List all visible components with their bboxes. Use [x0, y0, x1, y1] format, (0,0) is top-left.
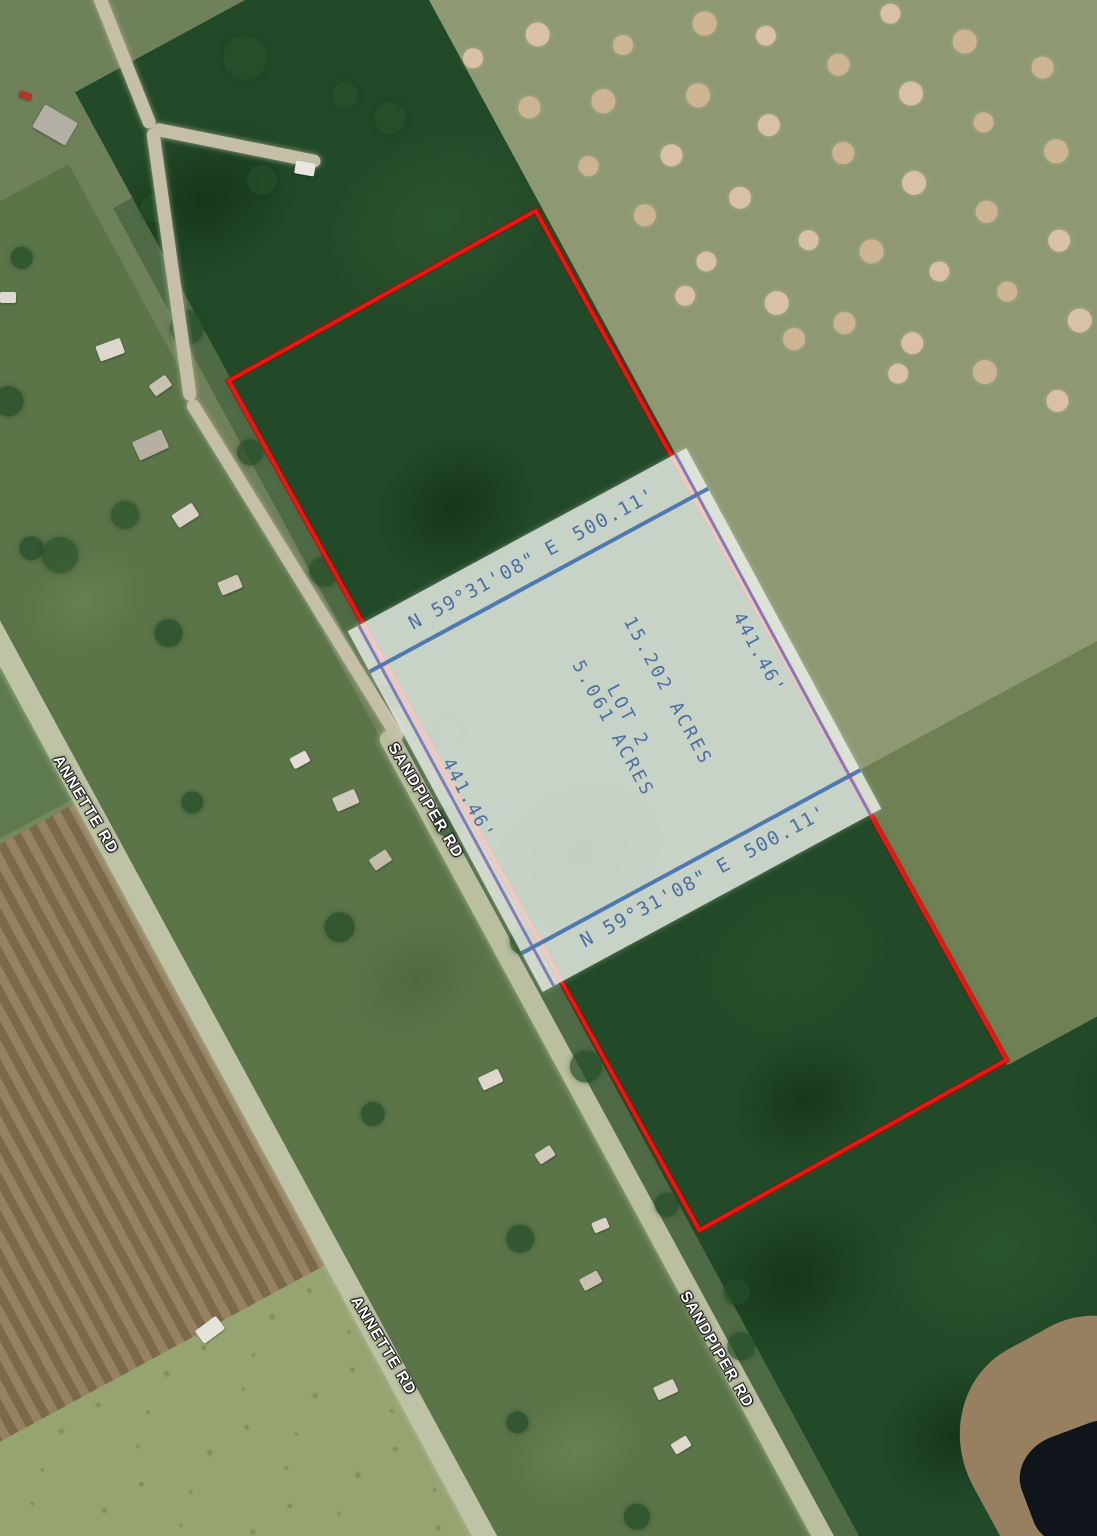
road-segment	[145, 127, 196, 401]
house	[294, 160, 316, 176]
tree	[223, 36, 267, 80]
tree	[332, 82, 358, 108]
tree	[42, 537, 78, 573]
house	[0, 292, 16, 303]
tree	[247, 165, 277, 195]
road-segment	[88, 0, 157, 130]
red-car	[18, 90, 33, 101]
right-side-dimension: 441.46'	[728, 609, 789, 698]
map-canvas[interactable]: N 59°31'08" E 500.11' N 59°31'08" E 500.…	[0, 0, 1097, 1536]
tree	[374, 102, 406, 134]
house	[32, 104, 78, 146]
tree	[111, 501, 139, 529]
